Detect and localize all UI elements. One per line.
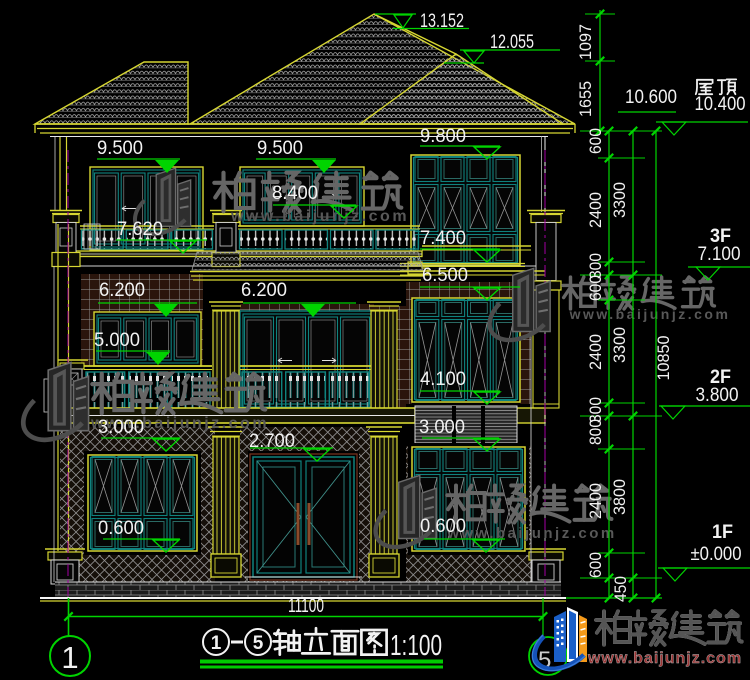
svg-text:800: 800 bbox=[586, 419, 605, 445]
svg-text:www.baijunjz.com: www.baijunjz.com bbox=[587, 650, 742, 667]
svg-text:9.500: 9.500 bbox=[97, 138, 143, 159]
svg-text:1F: 1F bbox=[712, 522, 733, 543]
svg-text:600: 600 bbox=[586, 128, 605, 154]
svg-text:7.620: 7.620 bbox=[117, 219, 163, 240]
svg-text:1:100: 1:100 bbox=[390, 630, 442, 662]
svg-text:1097: 1097 bbox=[576, 24, 595, 60]
svg-text:10.400: 10.400 bbox=[695, 94, 746, 115]
svg-text:3.800: 3.800 bbox=[696, 385, 739, 406]
svg-text:3300: 3300 bbox=[610, 182, 629, 218]
svg-text:5: 5 bbox=[253, 633, 264, 654]
svg-text:2.700: 2.700 bbox=[249, 431, 295, 452]
svg-text:2400: 2400 bbox=[586, 334, 605, 370]
svg-text:3300: 3300 bbox=[610, 327, 629, 363]
svg-text:10850: 10850 bbox=[654, 336, 673, 381]
svg-text:±0.000: ±0.000 bbox=[691, 544, 742, 565]
svg-text:6.500: 6.500 bbox=[422, 265, 468, 286]
svg-text:www.baijunjz.com: www.baijunjz.com bbox=[230, 208, 409, 225]
svg-text:9.500: 9.500 bbox=[257, 138, 303, 159]
svg-text:450: 450 bbox=[611, 576, 630, 602]
svg-text:1: 1 bbox=[61, 640, 78, 675]
svg-text:3.000: 3.000 bbox=[98, 417, 144, 438]
svg-text:0.600: 0.600 bbox=[98, 518, 144, 539]
svg-text:3800: 3800 bbox=[610, 479, 629, 515]
svg-text:www.baijunjz.com: www.baijunjz.com bbox=[569, 306, 731, 322]
svg-text:4.100: 4.100 bbox=[420, 369, 466, 390]
svg-text:7.100: 7.100 bbox=[698, 244, 741, 265]
svg-text:11100: 11100 bbox=[288, 596, 324, 617]
svg-text:2400: 2400 bbox=[586, 483, 605, 519]
svg-text:6.200: 6.200 bbox=[99, 280, 145, 301]
svg-text:5.000: 5.000 bbox=[94, 330, 140, 351]
svg-text:6.200: 6.200 bbox=[241, 280, 287, 301]
svg-text:1: 1 bbox=[211, 633, 222, 654]
svg-text:3.000: 3.000 bbox=[419, 417, 465, 438]
svg-text:9.800: 9.800 bbox=[420, 126, 466, 147]
svg-text:600: 600 bbox=[586, 275, 605, 301]
svg-text:1655: 1655 bbox=[576, 81, 595, 117]
svg-text:2400: 2400 bbox=[586, 192, 605, 228]
svg-text:600: 600 bbox=[586, 552, 605, 578]
svg-text:7.400: 7.400 bbox=[420, 228, 466, 249]
svg-text:8.400: 8.400 bbox=[272, 183, 318, 204]
svg-text:0.600: 0.600 bbox=[420, 516, 466, 537]
svg-text:10.600: 10.600 bbox=[625, 87, 677, 108]
